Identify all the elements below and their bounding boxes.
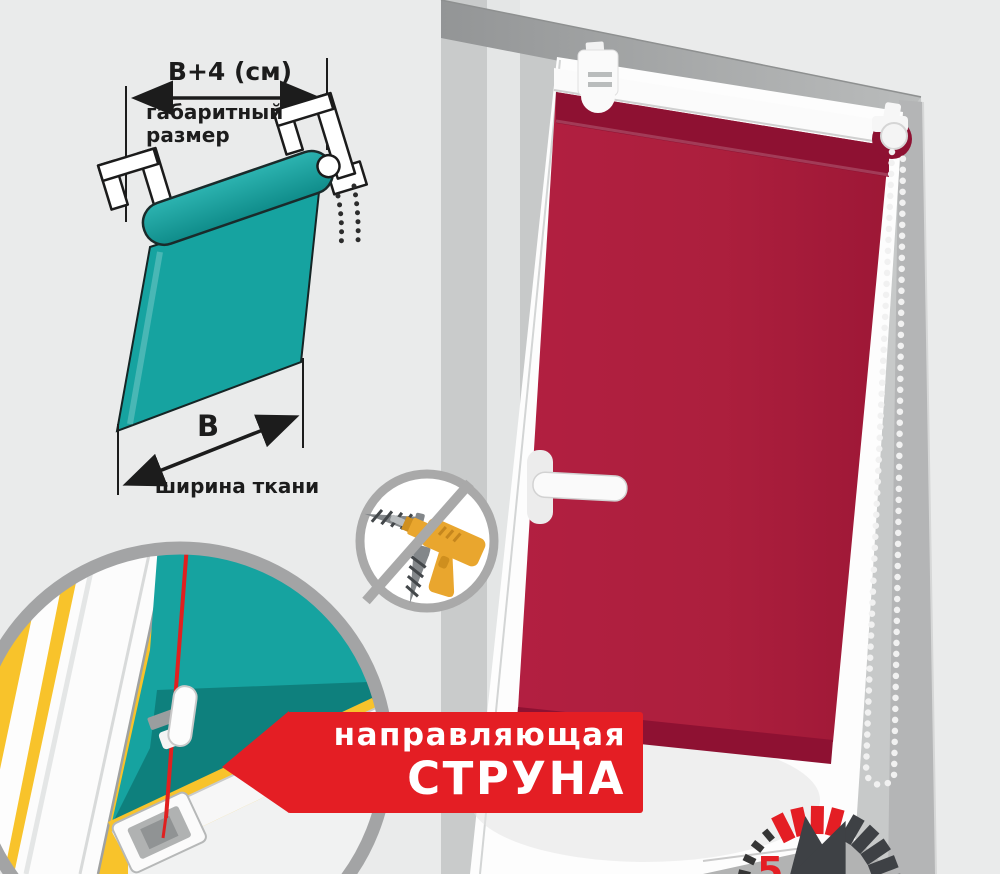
blind-fabric: [518, 92, 889, 742]
illustration-canvas: В+4 (см) габаритный размер В ширина ткан…: [0, 0, 1000, 874]
overall-size-label-line1: габаритный: [146, 100, 283, 124]
magnifier-detail-circle: [0, 545, 420, 874]
fabric-width-label: ширина ткани: [146, 474, 328, 498]
door-clamp-bracket: [578, 41, 618, 113]
banner-label-line2: СТРУНА: [300, 754, 626, 803]
roll-end-cap: [881, 123, 907, 149]
banner-label-line1: направляющая: [300, 717, 626, 754]
overall-size-label-line2: размер: [146, 123, 230, 147]
banner-text: направляющая СТРУНА: [300, 717, 626, 803]
fabric-width-letter: В: [197, 409, 219, 443]
no-drill-icon: [360, 474, 494, 608]
gauge-number: 5: [757, 849, 783, 874]
width-plus-label: В+4 (см): [140, 57, 320, 86]
diagram-chain: [338, 196, 342, 248]
